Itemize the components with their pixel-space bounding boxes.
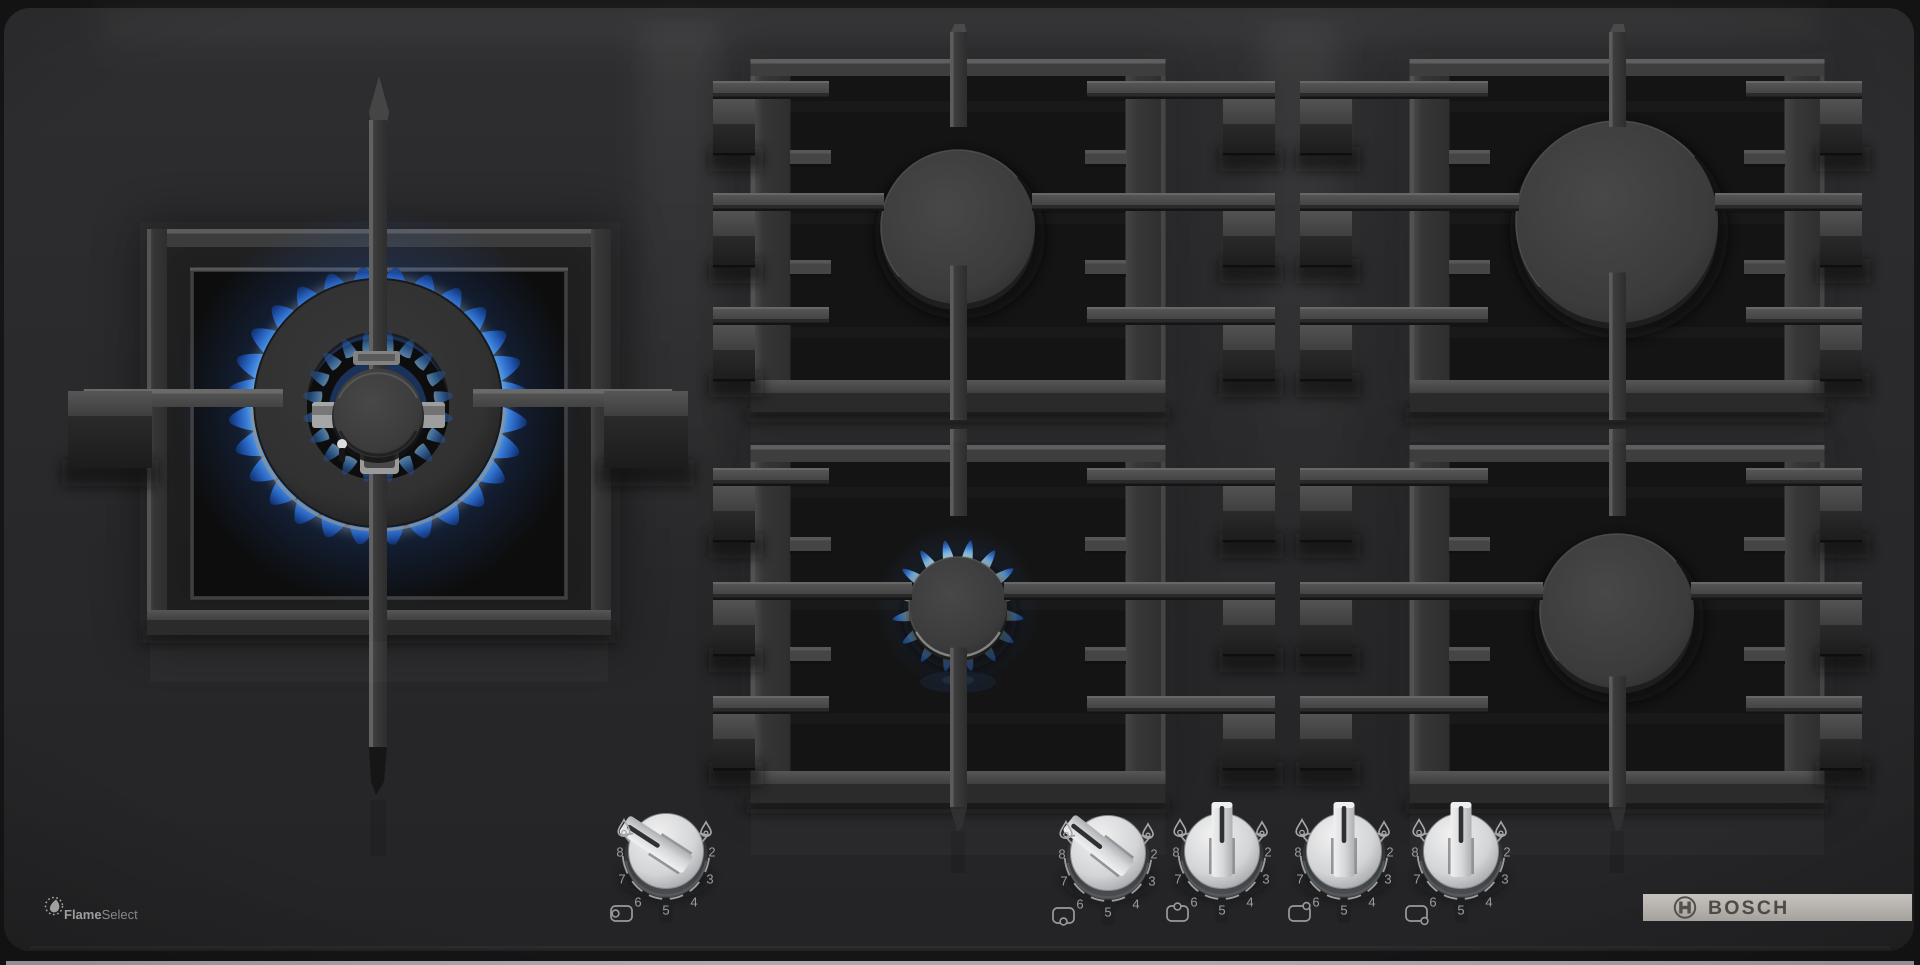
svg-text:4: 4 [1132, 897, 1139, 912]
svg-text:7: 7 [1174, 872, 1181, 887]
svg-text:5: 5 [1218, 903, 1225, 918]
svg-text:4: 4 [1246, 895, 1253, 910]
svg-text:5: 5 [1340, 903, 1347, 918]
svg-text:5: 5 [1104, 905, 1111, 920]
svg-text:3: 3 [1262, 872, 1269, 887]
svg-text:3: 3 [1384, 872, 1391, 887]
svg-text:6: 6 [1312, 895, 1319, 910]
svg-text:FlameSelect: FlameSelect [64, 907, 138, 922]
svg-text:2: 2 [708, 845, 715, 860]
svg-text:2: 2 [1264, 845, 1271, 860]
svg-text:5: 5 [662, 903, 669, 918]
svg-text:4: 4 [1485, 895, 1492, 910]
svg-text:3: 3 [706, 872, 713, 887]
svg-text:6: 6 [634, 895, 641, 910]
svg-text:3: 3 [1501, 872, 1508, 887]
svg-text:2: 2 [1150, 847, 1157, 862]
svg-text:5: 5 [1457, 903, 1464, 918]
svg-text:2: 2 [1503, 845, 1510, 860]
svg-text:7: 7 [1413, 872, 1420, 887]
svg-text:3: 3 [1148, 874, 1155, 889]
svg-text:7: 7 [618, 872, 625, 887]
svg-text:6: 6 [1190, 895, 1197, 910]
svg-text:4: 4 [690, 895, 697, 910]
svg-text:2: 2 [1386, 845, 1393, 860]
svg-text:6: 6 [1076, 897, 1083, 912]
svg-text:6: 6 [1429, 895, 1436, 910]
svg-text:7: 7 [1060, 874, 1067, 889]
svg-text:4: 4 [1368, 895, 1375, 910]
svg-text:7: 7 [1296, 872, 1303, 887]
svg-text:BOSCH: BOSCH [1708, 897, 1789, 919]
